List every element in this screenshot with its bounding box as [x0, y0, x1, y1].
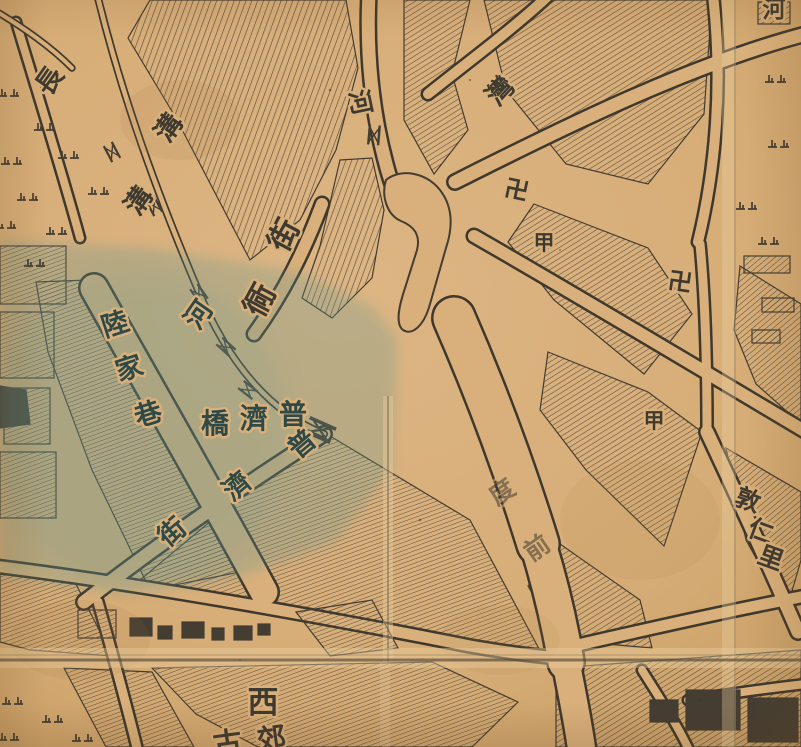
building: [234, 626, 252, 640]
marsh-tuft-symbol: [765, 75, 786, 82]
marsh-tuft-symbol: [758, 237, 779, 244]
building: [212, 628, 224, 640]
marsh-tuft-symbol: [736, 202, 757, 209]
marsh-tuft-symbol: [0, 733, 19, 740]
marsh-tuft-symbol: [1, 157, 22, 164]
district-name-partial: 郊: [255, 720, 288, 747]
street: [454, 318, 538, 544]
block-marker: 甲: [534, 230, 555, 255]
marsh-tuft-symbol: [768, 140, 789, 147]
building: [748, 698, 798, 742]
marsh-tuft-symbol: [72, 734, 93, 741]
building: [650, 700, 678, 722]
block-marker: 甲: [644, 408, 665, 433]
marsh-tuft-symbol: [46, 227, 67, 234]
street: [566, 662, 582, 747]
bridge-name: 橋: [201, 407, 230, 440]
marsh-tuft-symbol: [0, 89, 19, 96]
marsh-tuft-symbol: [58, 151, 79, 158]
fold-crease-vertical-right: [722, 0, 736, 747]
bridge-symbol: [104, 142, 120, 162]
temple-symbol: 卍: [502, 173, 532, 206]
marsh-tuft-symbol: [2, 697, 23, 704]
map-image: 長溝溝河街衕河灣卍甲卍甲陸家巷橋濟普普濟街度前敦仁里西古郊河: [0, 0, 801, 747]
water-name-partial: 河: [763, 0, 786, 23]
district-name-partial: 古: [211, 724, 244, 747]
building: [258, 624, 270, 635]
marsh-tuft-symbol: [17, 193, 38, 200]
marsh-tuft-symbol: [42, 715, 63, 722]
map-canvas: 長溝溝河街衕河灣卍甲卍甲陸家巷橋濟普普濟街度前敦仁里西古郊河: [0, 0, 801, 747]
building: [744, 256, 790, 273]
marsh-tuft-symbol: [88, 187, 109, 194]
canal: [0, 10, 72, 68]
building: [762, 298, 794, 312]
temple-symbol: 卍: [666, 266, 694, 298]
building: [158, 626, 172, 639]
bridge-name: 濟: [240, 402, 268, 435]
fold-crease-horizontal: [0, 648, 801, 668]
building: [182, 622, 204, 638]
paper-mark: [380, 662, 390, 747]
city-block: [152, 662, 518, 747]
building: [752, 330, 780, 343]
district-name: 西: [248, 685, 279, 721]
marsh-tuft-symbol: [0, 221, 16, 228]
